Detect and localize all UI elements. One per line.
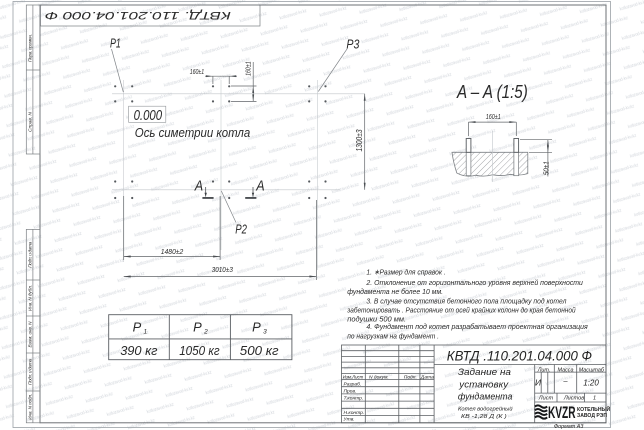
svg-text:1050 кг: 1050 кг bbox=[179, 343, 220, 358]
svg-text:3010±3: 3010±3 bbox=[212, 265, 234, 274]
svg-text:Лит.: Лит. bbox=[537, 367, 551, 373]
svg-text:Масса: Масса bbox=[558, 367, 574, 373]
svg-text:Листов: Листов bbox=[563, 395, 584, 401]
svg-text:Разраб.: Разраб. bbox=[344, 382, 362, 388]
svg-text:Подп. и дата: Подп. и дата bbox=[27, 241, 33, 267]
svg-text:Лист: Лист bbox=[538, 395, 554, 401]
svg-text:установку: установку bbox=[458, 380, 509, 391]
svg-text:P2: P2 bbox=[235, 222, 247, 237]
svg-text:Взам. инв. N: Взам. инв. N bbox=[27, 321, 33, 348]
svg-text:160±1: 160±1 bbox=[190, 69, 205, 76]
svg-text:2. Отклонение от горизонтальн: 2. Отклонение от горизонтального уровня … bbox=[365, 278, 583, 287]
svg-text:1: 1 bbox=[593, 395, 596, 401]
svg-text:160±1: 160±1 bbox=[246, 61, 253, 76]
svg-text:Утв.: Утв. bbox=[344, 417, 355, 423]
svg-text:–: – bbox=[562, 377, 568, 386]
svg-text:3. В случае отсутствия бетонн: 3. В случае отсутствия бетонного пола пл… bbox=[366, 296, 567, 305]
svg-text:Пров.: Пров. bbox=[344, 388, 357, 394]
svg-text:1300±3: 1300±3 bbox=[355, 129, 364, 151]
svg-text:P1: P1 bbox=[110, 35, 121, 50]
svg-text:P3: P3 bbox=[346, 37, 360, 52]
svg-text:A: A bbox=[255, 177, 264, 194]
svg-text:4. Фундамент под котел разраб: 4. Фундамент под котел разрабатывает про… bbox=[366, 322, 587, 331]
svg-text:Подп. и дата: Подп. и дата bbox=[27, 359, 33, 385]
svg-text:Т.контр.: Т.контр. bbox=[344, 396, 364, 402]
svg-text:Формат А3: Формат А3 bbox=[554, 424, 584, 430]
svg-text:50±1: 50±1 bbox=[543, 161, 550, 175]
svg-text:1:20: 1:20 bbox=[583, 378, 599, 387]
svg-text:КВТД .110.201.04.000 Ф: КВТД .110.201.04.000 Ф bbox=[447, 349, 592, 364]
svg-text:фундамента не более 10 мм.: фундамента не более 10 мм. bbox=[347, 287, 443, 296]
svg-text:Котел водогрейный: Котел водогрейный bbox=[458, 406, 513, 413]
svg-text:160±1: 160±1 bbox=[486, 114, 501, 121]
svg-text:Дата: Дата bbox=[420, 374, 434, 380]
svg-text:фундамента: фундамента bbox=[458, 392, 513, 403]
svg-text:A – A (1:5): A – A (1:5) bbox=[456, 82, 528, 102]
svg-text:A: A bbox=[194, 177, 203, 194]
svg-text:0.000: 0.000 bbox=[134, 107, 163, 124]
svg-text:Ось симетрии котла: Ось симетрии котла bbox=[135, 125, 250, 140]
svg-text:Изм.Лист: Изм.Лист bbox=[343, 374, 364, 380]
svg-text:Подп.: Подп. bbox=[404, 374, 417, 380]
svg-text:3: 3 bbox=[263, 329, 267, 336]
svg-text:КОТЕЛЬНЫЙ: КОТЕЛЬНЫЙ bbox=[577, 405, 610, 413]
svg-text:N докум.: N докум. bbox=[369, 374, 389, 380]
svg-text:по нагрузкам на фундамент .: по нагрузкам на фундамент . bbox=[347, 331, 439, 340]
svg-text:Справ. N: Справ. N bbox=[27, 111, 33, 132]
svg-text:390 кг: 390 кг bbox=[120, 343, 158, 358]
svg-text:Перв. примен.: Перв. примен. bbox=[27, 34, 33, 62]
svg-text:Масштаб: Масштаб bbox=[579, 367, 605, 373]
svg-text:1. ∗Размер для справок .: 1. ∗Размер для справок . bbox=[366, 268, 445, 277]
svg-text:1: 1 bbox=[144, 329, 148, 336]
svg-text:И: И bbox=[535, 377, 542, 387]
svg-text:ЗАВОД РЭП: ЗАВОД РЭП bbox=[577, 413, 607, 419]
svg-text:Инв. N подл.: Инв. N подл. bbox=[27, 394, 33, 420]
svg-text:1480±2: 1480±2 bbox=[161, 247, 184, 256]
svg-text:500 кг: 500 кг bbox=[240, 343, 279, 358]
svg-text:Задание на: Задание на bbox=[458, 367, 511, 378]
svg-text:КВ -1,28 Д (К ): КВ -1,28 Д (К ) bbox=[461, 414, 507, 420]
svg-text:2: 2 bbox=[203, 329, 208, 336]
svg-text:Инв. N дубл.: Инв. N дубл. bbox=[27, 285, 33, 311]
svg-text:P: P bbox=[252, 321, 261, 335]
svg-text:P: P bbox=[193, 321, 202, 335]
svg-text:P: P bbox=[133, 321, 142, 335]
svg-text:КВТД. 110.201.04.000 Ф: КВТД. 110.201.04.000 Ф bbox=[44, 9, 231, 21]
svg-text:Н.контр.: Н.контр. bbox=[344, 410, 365, 416]
svg-text:забетонировать . Расстояние от: забетонировать . Расстояние от осей край… bbox=[346, 305, 576, 314]
svg-text:KVZR: KVZR bbox=[548, 404, 576, 422]
